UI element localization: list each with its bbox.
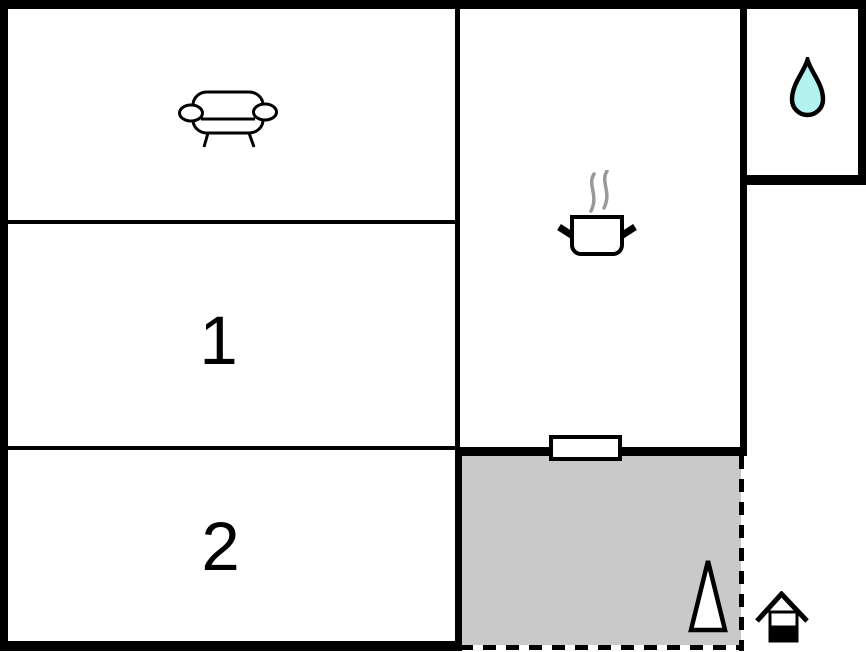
wall-bathroom-bottom xyxy=(741,175,866,185)
floor-plan: 1 2 xyxy=(0,0,866,652)
bedroom-1-label: 1 xyxy=(186,306,251,376)
wall-outer-top xyxy=(0,0,866,9)
wall-rooms-kitchen xyxy=(455,0,460,447)
wall-terrace-left xyxy=(455,447,462,645)
house-entrance-icon xyxy=(755,591,811,644)
conifer-tree-icon xyxy=(687,557,730,634)
cooking-pot-icon xyxy=(557,170,637,256)
bedroom-2-label: 2 xyxy=(188,512,253,582)
wall-outer-left xyxy=(0,0,8,651)
wall-kitchen-right xyxy=(740,0,747,456)
wall-outer-bottom xyxy=(0,641,462,651)
water-drop-icon xyxy=(789,57,826,124)
terrace-boundary-dashed-bottom xyxy=(460,645,744,650)
wall-bedroom1-bedroom2 xyxy=(0,446,455,450)
sofa-icon xyxy=(178,85,278,149)
wall-outer-right xyxy=(858,0,866,185)
terrace-boundary-dashed-right xyxy=(739,456,744,651)
steam-icon xyxy=(591,171,607,211)
window-icon xyxy=(549,435,622,461)
wall-living-bedroom1 xyxy=(0,220,455,224)
